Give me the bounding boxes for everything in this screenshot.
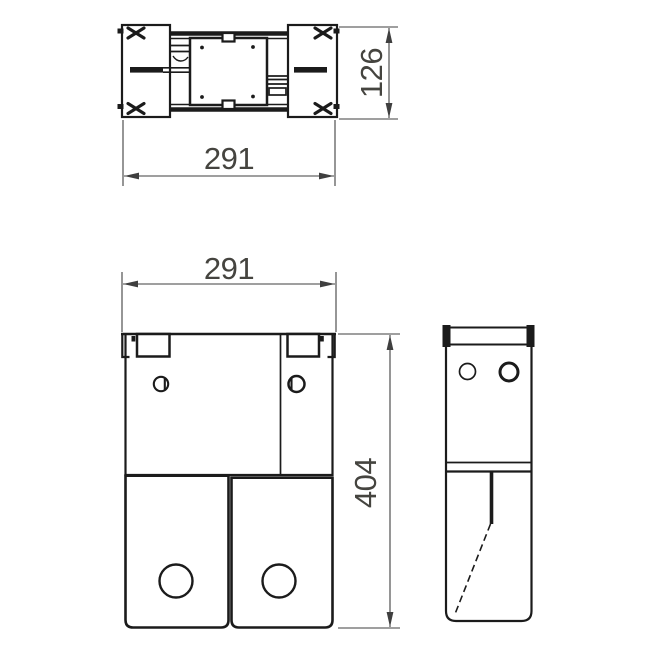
dim-label-top-width: 291	[204, 141, 254, 176]
plate-hole	[200, 46, 204, 50]
arrowhead-icon	[386, 103, 393, 118]
drawing-svg: 291 126	[0, 0, 655, 655]
plate-hole	[200, 95, 204, 99]
arrowhead-icon	[319, 173, 334, 180]
right-block-bar	[294, 67, 327, 73]
lower-panel-right	[232, 478, 333, 628]
right-clip-lug-top	[334, 29, 340, 34]
diagonal-hidden-line	[455, 524, 491, 614]
arrowhead-icon	[386, 28, 393, 43]
left-block-bar	[130, 67, 163, 73]
screw-hole-small-left	[154, 377, 168, 391]
plate-hole	[251, 45, 255, 49]
arrowhead-icon	[124, 173, 139, 180]
side-hole-right	[500, 363, 518, 381]
plate-tab-top	[223, 33, 235, 42]
front-view	[121, 334, 336, 628]
mount-notch-left	[137, 334, 170, 357]
mount-notch-right	[288, 334, 320, 357]
left-clip-lug-top	[118, 29, 124, 34]
plate-tab-bottom	[223, 101, 235, 110]
arrowhead-icon	[387, 335, 394, 350]
plate-hole	[251, 95, 255, 99]
notch-catch-left	[132, 336, 136, 342]
right-clip-lug-bottom	[334, 104, 340, 109]
lower-panel-left	[126, 476, 229, 628]
arrowhead-icon	[387, 612, 394, 627]
dim-label-front-height: 404	[348, 458, 383, 508]
arrowhead-icon	[320, 281, 335, 288]
side-view	[443, 325, 535, 621]
right-latch-detail	[267, 76, 288, 95]
dim-label-top-depth: 126	[354, 48, 389, 98]
dim-label-front-width: 291	[204, 251, 254, 286]
lip-hook-right	[328, 334, 335, 357]
notch-catch-right	[320, 336, 324, 342]
cap-end-right	[527, 325, 535, 347]
left-clip-lug-bottom	[118, 104, 124, 109]
technical-drawing-page: 291 126	[0, 0, 655, 655]
side-hole-left	[460, 364, 476, 380]
cap-end-left	[443, 325, 451, 347]
top-view	[118, 25, 340, 117]
arrowhead-icon	[123, 281, 138, 288]
